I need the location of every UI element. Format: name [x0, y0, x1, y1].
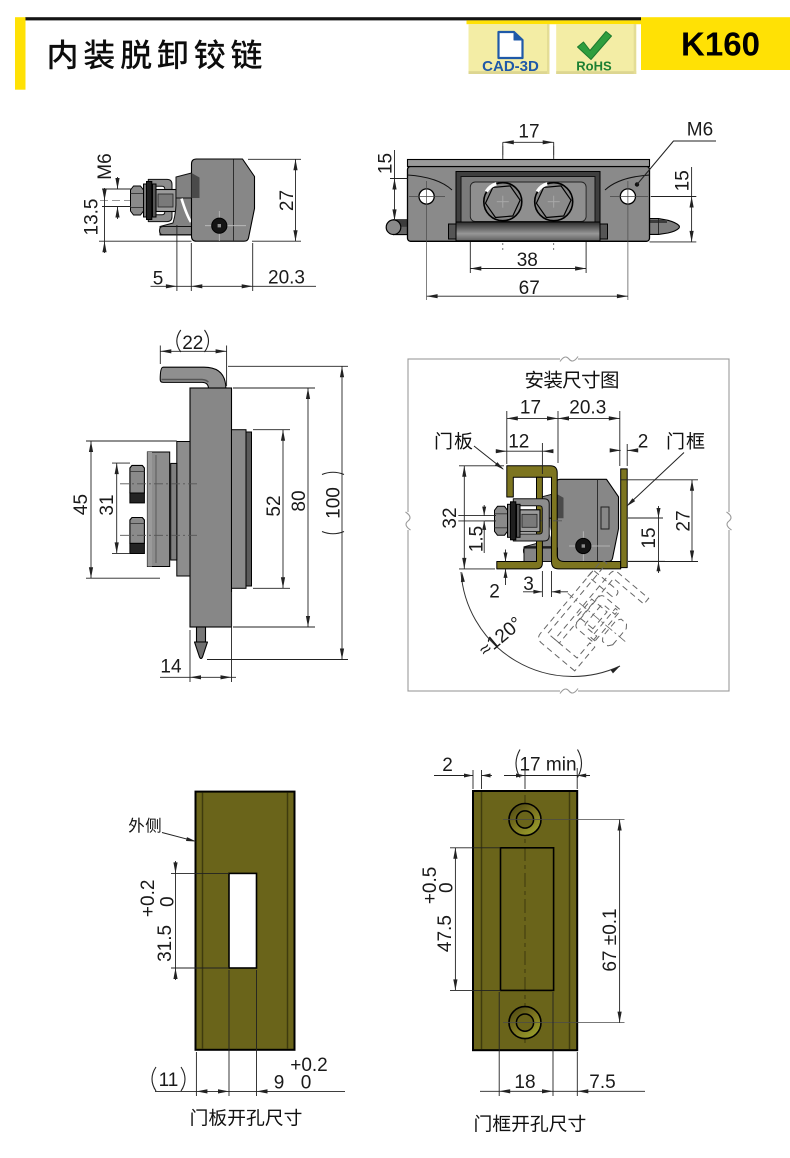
svg-text:15: 15: [376, 153, 397, 174]
svg-text:27: 27: [673, 510, 694, 531]
svg-text:20.3: 20.3: [268, 267, 305, 288]
svg-text:17 min: 17 min: [519, 755, 576, 776]
svg-text:M6: M6: [687, 119, 713, 140]
svg-text:0: 0: [437, 882, 458, 893]
svg-text:45: 45: [71, 494, 92, 515]
svg-text:17: 17: [518, 121, 539, 142]
svg-text:0: 0: [157, 896, 178, 907]
svg-text:M6: M6: [95, 153, 116, 179]
svg-text:2: 2: [638, 431, 649, 452]
svg-text:+0.2: +0.2: [138, 880, 159, 918]
svg-text:27: 27: [277, 190, 298, 211]
svg-text:14: 14: [160, 656, 182, 677]
svg-text:32: 32: [440, 507, 461, 528]
svg-text:80: 80: [289, 490, 310, 511]
svg-text:11: 11: [159, 1070, 179, 1091]
svg-text:100: 100: [324, 487, 345, 519]
svg-text:67 ±0.1: 67 ±0.1: [600, 908, 621, 971]
svg-text:20.3: 20.3: [569, 397, 606, 418]
svg-text:38: 38: [517, 250, 538, 271]
svg-text:31.5: 31.5: [155, 925, 176, 962]
svg-text:2: 2: [442, 755, 453, 776]
svg-text:1.5: 1.5: [467, 526, 488, 552]
svg-text:15: 15: [673, 170, 694, 191]
svg-text:17: 17: [520, 397, 541, 418]
svg-text:22: 22: [182, 333, 203, 354]
svg-text:9: 9: [274, 1073, 285, 1094]
svg-text:12: 12: [508, 432, 529, 453]
svg-text:7.5: 7.5: [589, 1072, 615, 1093]
svg-text:31: 31: [97, 494, 118, 515]
svg-text:CAD-3D: CAD-3D: [482, 58, 539, 75]
svg-text:3: 3: [523, 574, 534, 595]
svg-text:5: 5: [153, 268, 164, 289]
svg-text:47.5: 47.5: [435, 915, 456, 952]
svg-text:2: 2: [489, 582, 500, 603]
svg-text:18: 18: [514, 1072, 535, 1093]
svg-text:13.5: 13.5: [82, 199, 103, 236]
svg-text:K160: K160: [681, 26, 760, 63]
svg-text:52: 52: [264, 495, 285, 516]
svg-text:15: 15: [639, 527, 660, 548]
svg-text:RoHS: RoHS: [576, 58, 612, 73]
svg-text:0: 0: [301, 1073, 312, 1094]
svg-text:67: 67: [519, 278, 540, 299]
